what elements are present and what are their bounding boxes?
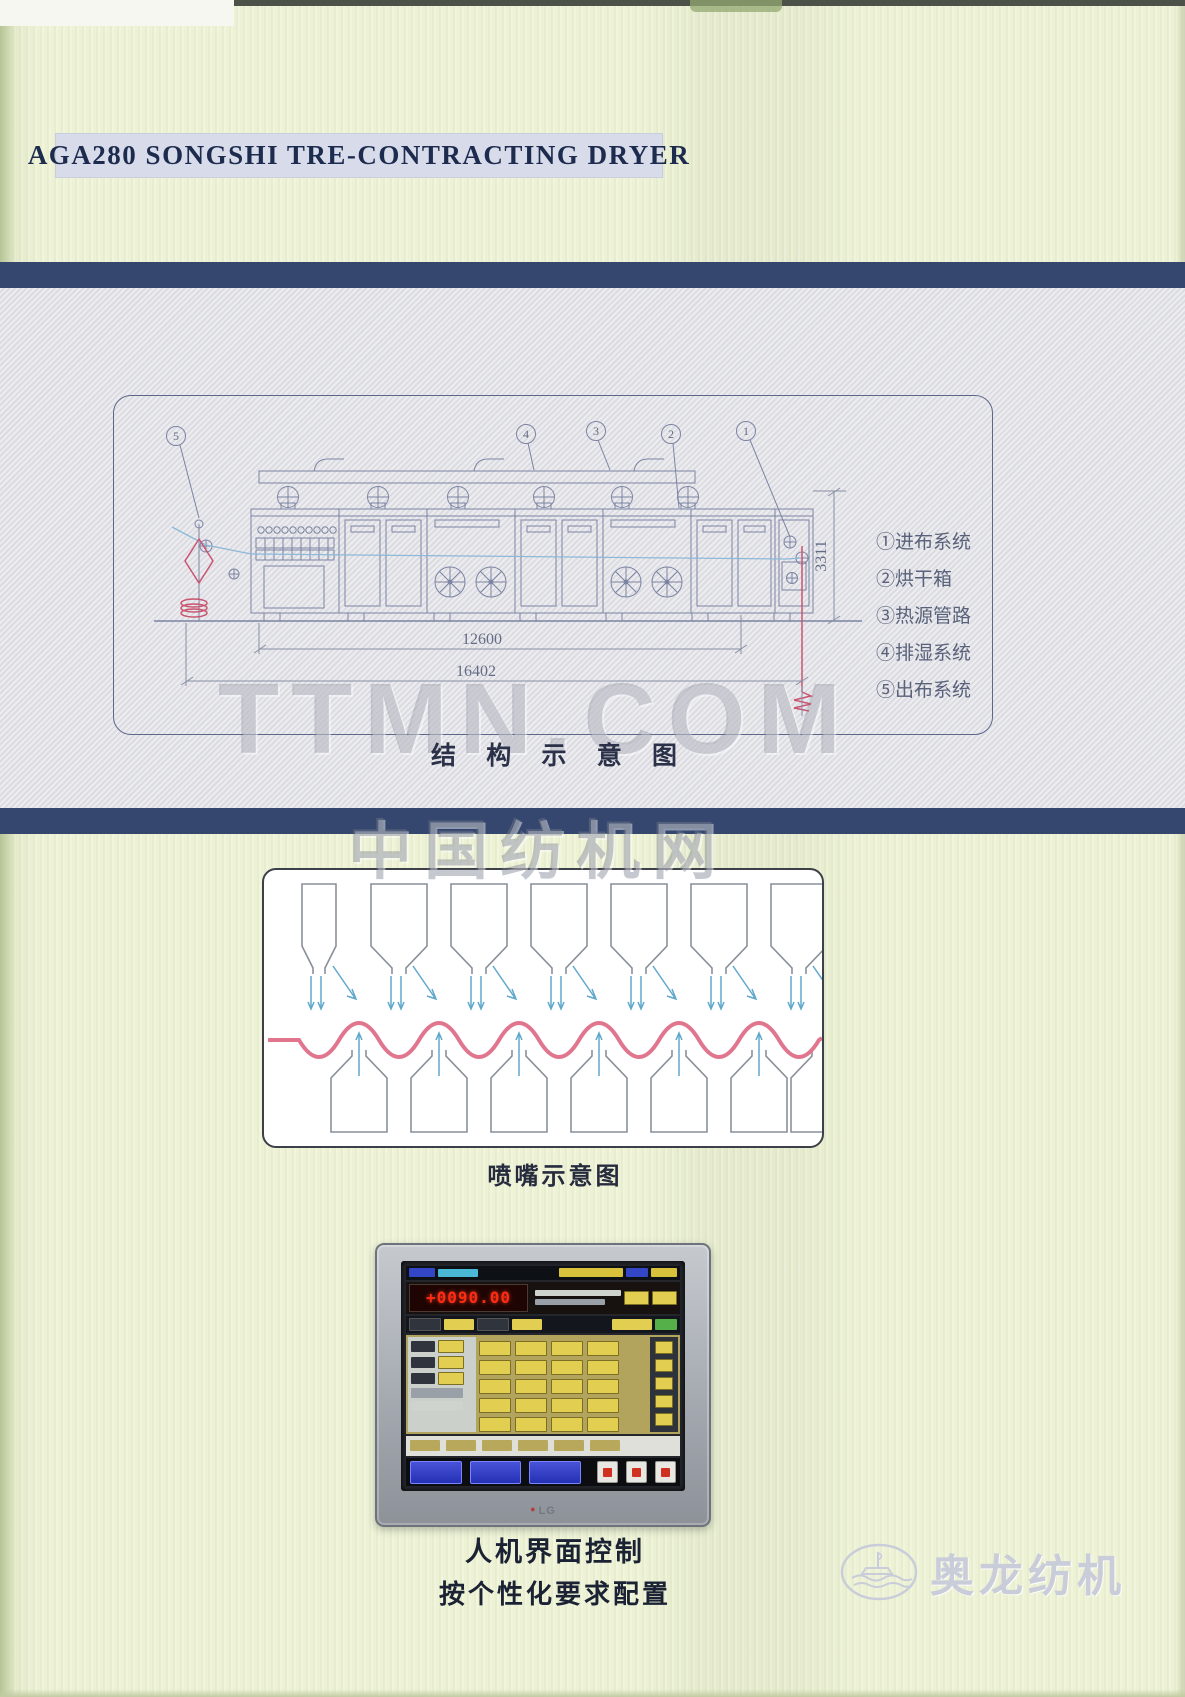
callout-3: 3 (593, 424, 599, 438)
hmi-grid-button (587, 1360, 619, 1375)
hmi-grid-button (587, 1398, 619, 1413)
nozzle-schematic-drawing (264, 870, 822, 1146)
nozzle-diagram-panel (262, 868, 824, 1148)
hmi-function-button (410, 1461, 462, 1484)
hmi-mini-button (446, 1440, 476, 1451)
scan-left-edge (0, 0, 16, 1697)
hmi-side-button (655, 1359, 673, 1372)
brochure-page: AGA280 SONGSHI TRE-CONTRACTING DRYER (0, 0, 1185, 1697)
diagram-legend: ①进布系统 ②烘干箱 ③热源管路 ④排湿系统 ⑤出布系统 (876, 524, 971, 709)
hmi-grid-button (515, 1379, 547, 1394)
callout-5: 5 (173, 429, 179, 443)
hmi-grid-button (587, 1379, 619, 1394)
legend-item-5: ⑤出布系统 (876, 672, 971, 709)
hmi-mini-button (411, 1341, 435, 1352)
structure-diagram-caption: 结 构 示 意 图 (0, 736, 1120, 772)
hmi-mini-button (438, 1356, 464, 1369)
hmi-description-line1: 人机界面控制 (0, 1530, 1110, 1569)
scan-corner-notch (0, 0, 234, 26)
hmi-button-grid (479, 1337, 647, 1432)
hmi-grid-button (551, 1398, 583, 1413)
hmi-status-bar (535, 1290, 621, 1296)
legend-item-4: ④排湿系统 (876, 635, 971, 672)
hmi-mini-button (554, 1440, 584, 1451)
callout-2: 2 (668, 427, 674, 441)
hmi-grid-button (479, 1417, 511, 1432)
hmi-nav-button (655, 1461, 676, 1483)
hmi-brand-text: LG (539, 1505, 556, 1517)
hmi-side-button (655, 1413, 673, 1426)
hmi-mini-button (411, 1373, 435, 1384)
hmi-function-button (470, 1461, 522, 1484)
hmi-nav-button (597, 1461, 618, 1483)
hmi-mini-button (409, 1318, 441, 1331)
hmi-mini-button (612, 1319, 652, 1330)
hmi-header-chip (438, 1269, 478, 1277)
hmi-display-row: +0090.00 (406, 1282, 680, 1314)
callout-4: 4 (523, 427, 529, 441)
hmi-mini-button (438, 1372, 464, 1385)
hmi-mini-button (444, 1319, 474, 1330)
hmi-mini-button (512, 1319, 542, 1330)
hmi-grid-button (551, 1379, 583, 1394)
hmi-status-bar (411, 1401, 463, 1411)
hmi-right-column (650, 1337, 678, 1432)
hmi-grid-button (551, 1360, 583, 1375)
hmi-status-bar (535, 1299, 605, 1305)
hmi-nav-button (626, 1461, 647, 1483)
hmi-header-chip (626, 1268, 648, 1277)
hmi-header-chip (409, 1268, 435, 1277)
scan-right-edge (1175, 0, 1185, 1697)
hmi-main-area (406, 1335, 680, 1434)
hmi-mini-button (518, 1440, 548, 1451)
hmi-grid-button (587, 1417, 619, 1432)
hmi-side-button (655, 1377, 673, 1390)
hmi-grid-button (551, 1417, 583, 1432)
hmi-mini-button (438, 1340, 464, 1353)
scan-bottom-edge (0, 1689, 1185, 1697)
legend-item-2: ②烘干箱 (876, 561, 971, 598)
hmi-grid-button (551, 1341, 583, 1356)
hmi-lower-strip (406, 1436, 680, 1457)
divider-band-top (0, 262, 1185, 288)
hmi-mini-button (624, 1291, 649, 1305)
legend-item-1: ①进布系统 (876, 524, 971, 561)
callout-1: 1 (743, 424, 749, 438)
scan-artifact (690, 0, 782, 12)
hmi-grid-button (479, 1379, 511, 1394)
structure-diagram-frame: 3311 12600 16402 5 4 3 2 1 (113, 395, 993, 735)
product-title-bar: AGA280 SONGSHI TRE-CONTRACTING DRYER (55, 133, 663, 178)
hmi-mini-button (411, 1357, 435, 1368)
dryer-schematic-drawing: 3311 12600 16402 5 4 3 2 1 (114, 396, 992, 734)
hmi-function-button (529, 1461, 581, 1484)
hmi-bottom-bar (406, 1458, 680, 1486)
hmi-led-display: +0090.00 (409, 1284, 528, 1312)
divider-band-bottom (0, 808, 1185, 834)
hmi-grid-button (515, 1360, 547, 1375)
hmi-mini-button (482, 1440, 512, 1451)
hmi-grid-button (479, 1398, 511, 1413)
hmi-header-bar (406, 1266, 680, 1280)
dimension-inner-length: 12600 (462, 631, 502, 648)
hmi-header-chip (651, 1268, 677, 1277)
hmi-grid-button (587, 1341, 619, 1356)
nozzle-diagram-caption: 喷嘴示意图 (0, 1156, 1110, 1191)
hmi-grid-button (479, 1341, 511, 1356)
hmi-mini-button (590, 1440, 620, 1451)
hmi-side-button (655, 1341, 673, 1354)
dimension-total-length: 16402 (456, 663, 496, 680)
fabric-wave-line (268, 1023, 822, 1057)
product-title: AGA280 SONGSHI TRE-CONTRACTING DRYER (28, 140, 690, 171)
legend-item-3: ③热源管路 (876, 598, 971, 635)
hmi-grid-button (515, 1417, 547, 1432)
dimension-height: 3311 (813, 540, 830, 571)
hmi-grid-button (515, 1398, 547, 1413)
hmi-mini-button (655, 1319, 677, 1330)
hmi-side-button (655, 1395, 673, 1408)
hmi-button-row (406, 1316, 680, 1333)
hmi-grid-button (515, 1341, 547, 1356)
hmi-header-chip (559, 1268, 623, 1277)
hmi-mini-button (652, 1291, 677, 1305)
hmi-status-bar (411, 1388, 463, 1398)
hmi-mini-button (477, 1318, 509, 1331)
hmi-grid-button (479, 1360, 511, 1375)
hmi-mini-button (410, 1440, 440, 1451)
hmi-description-line2: 按个性化要求配置 (0, 1574, 1110, 1611)
hmi-touch-panel: +0090.00 (375, 1243, 711, 1527)
hmi-brand-mark: ●LG (377, 1504, 709, 1517)
hmi-screen: +0090.00 (401, 1261, 685, 1491)
hmi-left-column (408, 1337, 476, 1432)
